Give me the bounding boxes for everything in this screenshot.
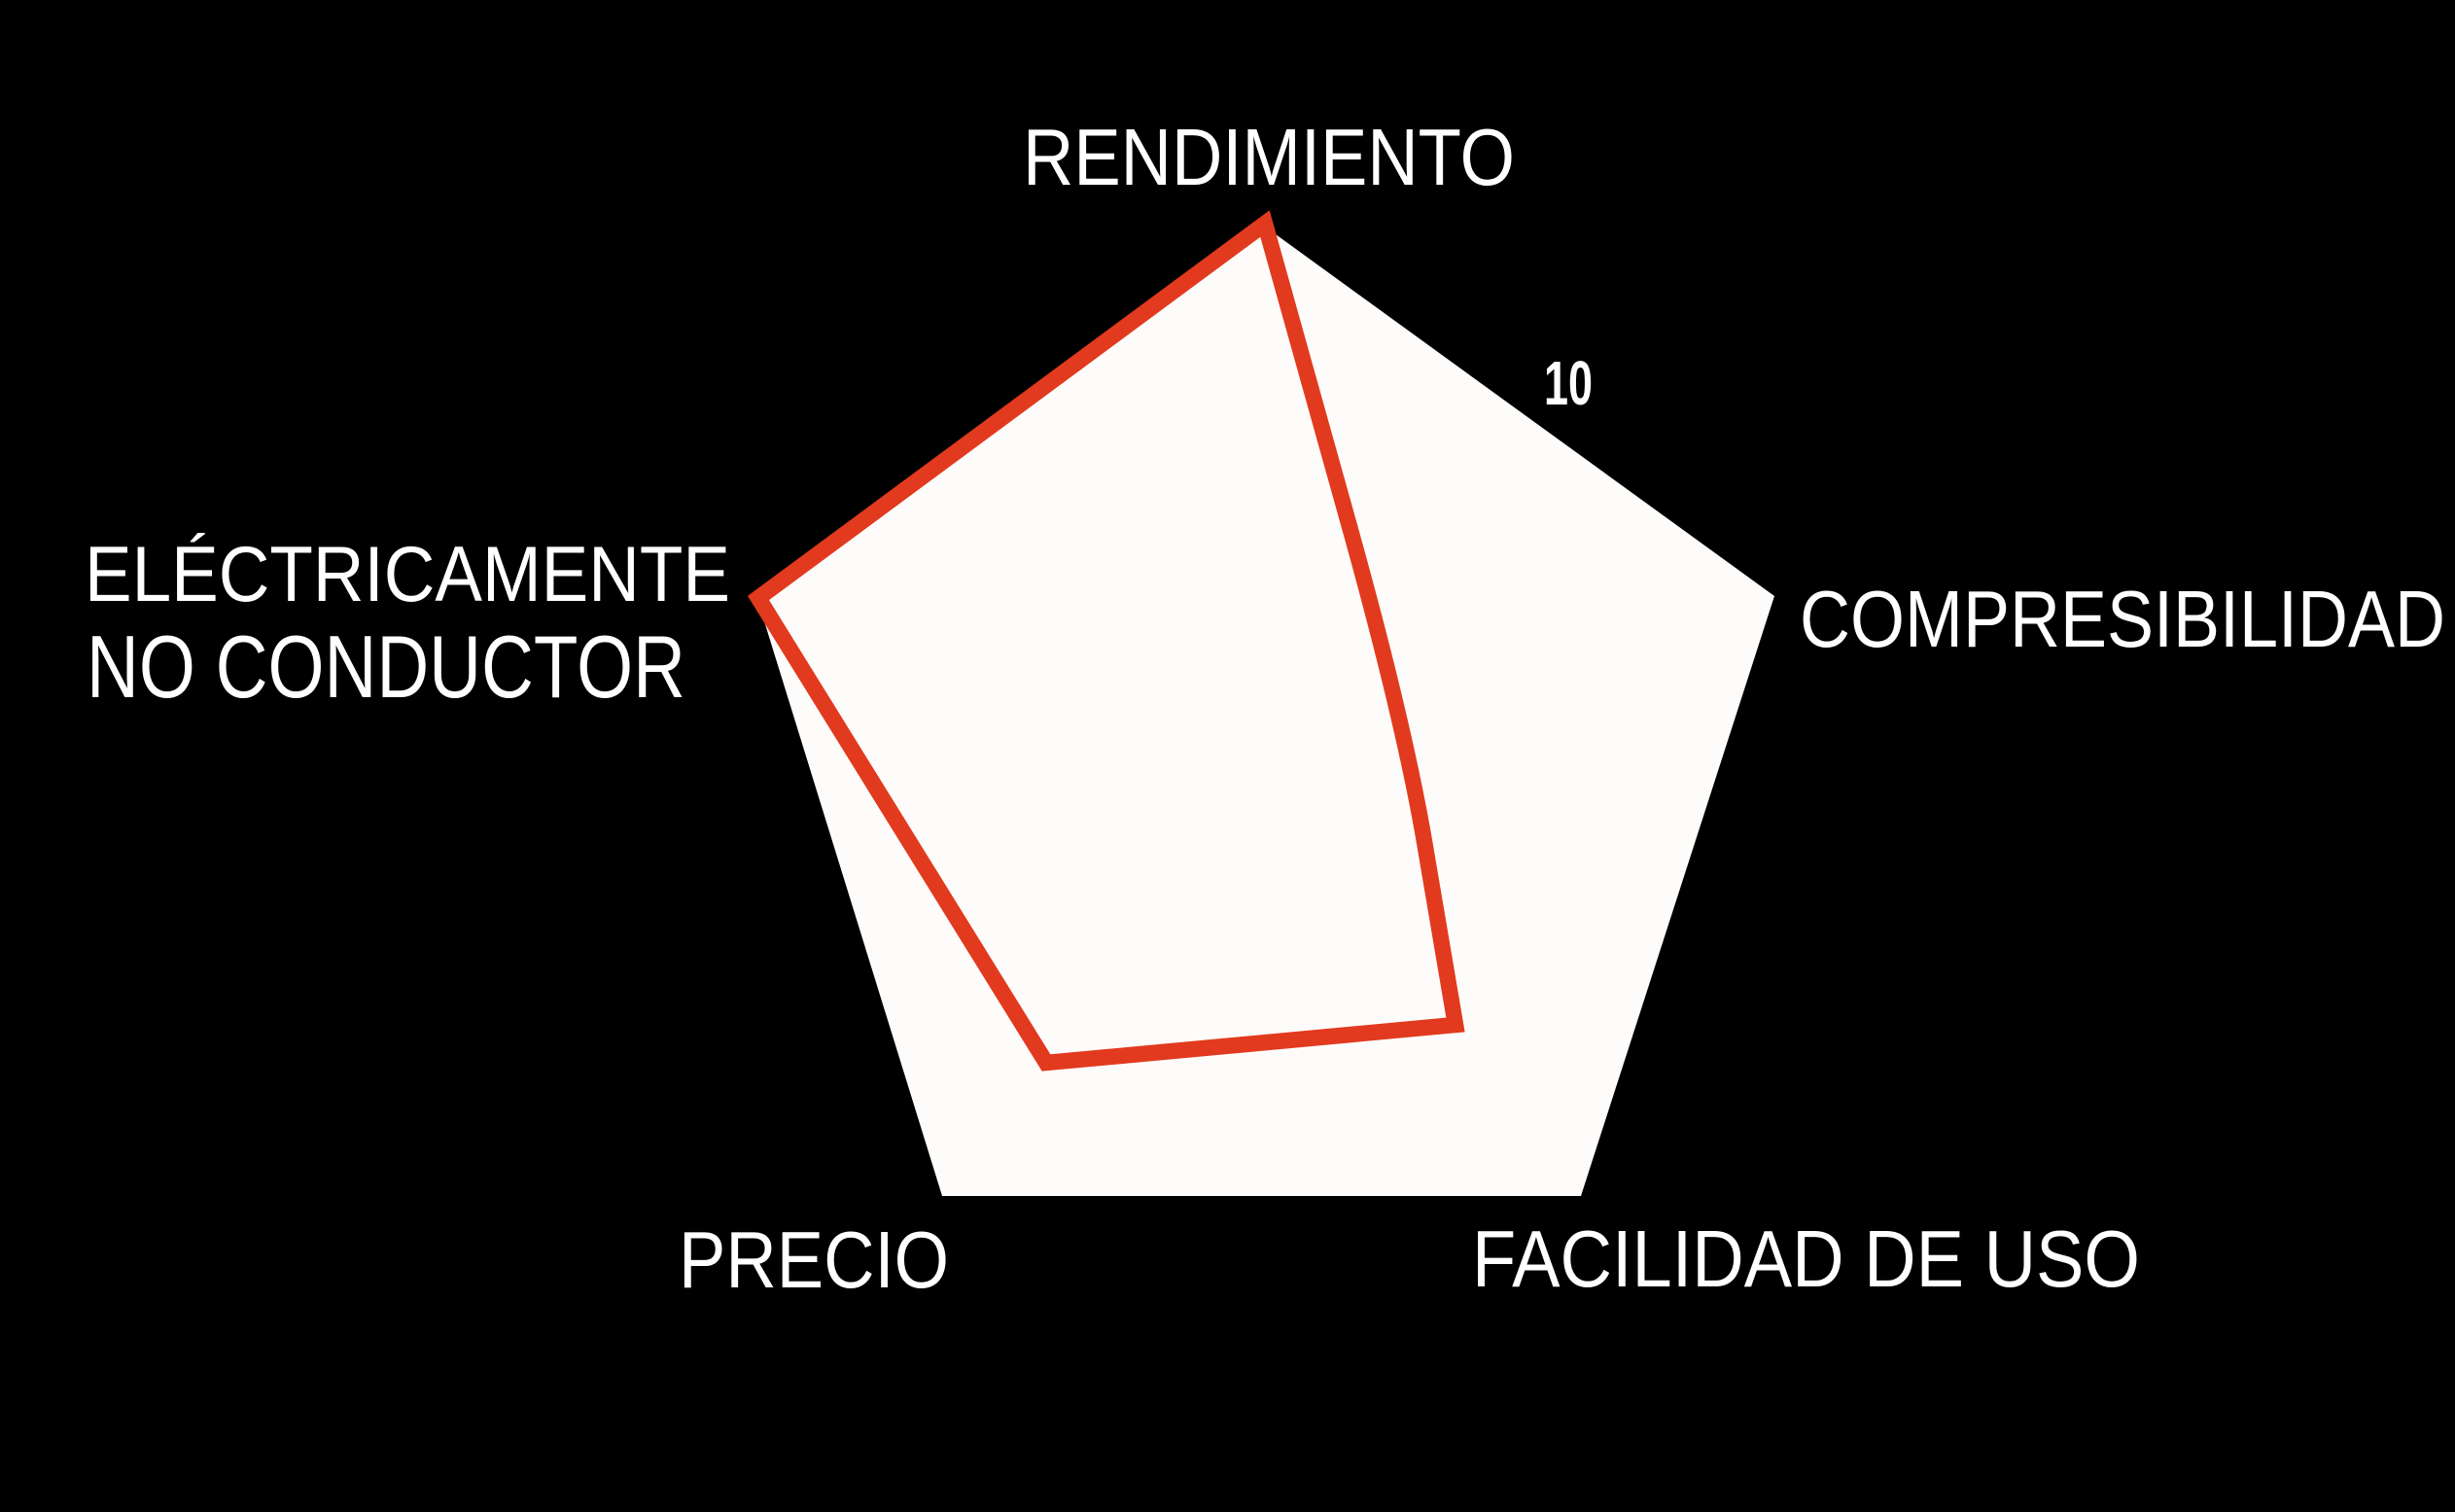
svg-text:RENDIMIENTO: RENDIMIENTO <box>1023 112 1515 202</box>
svg-text:ELÉCTRICAMENTE: ELÉCTRICAMENTE <box>85 531 730 618</box>
svg-text:NO CONDUCTOR: NO CONDUCTOR <box>87 618 685 717</box>
svg-text:COMPRESIBILIDAD: COMPRESIBILIDAD <box>1800 574 2445 664</box>
svg-text:FACILIDAD DE USO: FACILIDAD DE USO <box>1472 1213 2140 1304</box>
svg-text:PRECIO: PRECIO <box>679 1214 949 1305</box>
svg-text:10: 10 <box>1544 348 1593 418</box>
